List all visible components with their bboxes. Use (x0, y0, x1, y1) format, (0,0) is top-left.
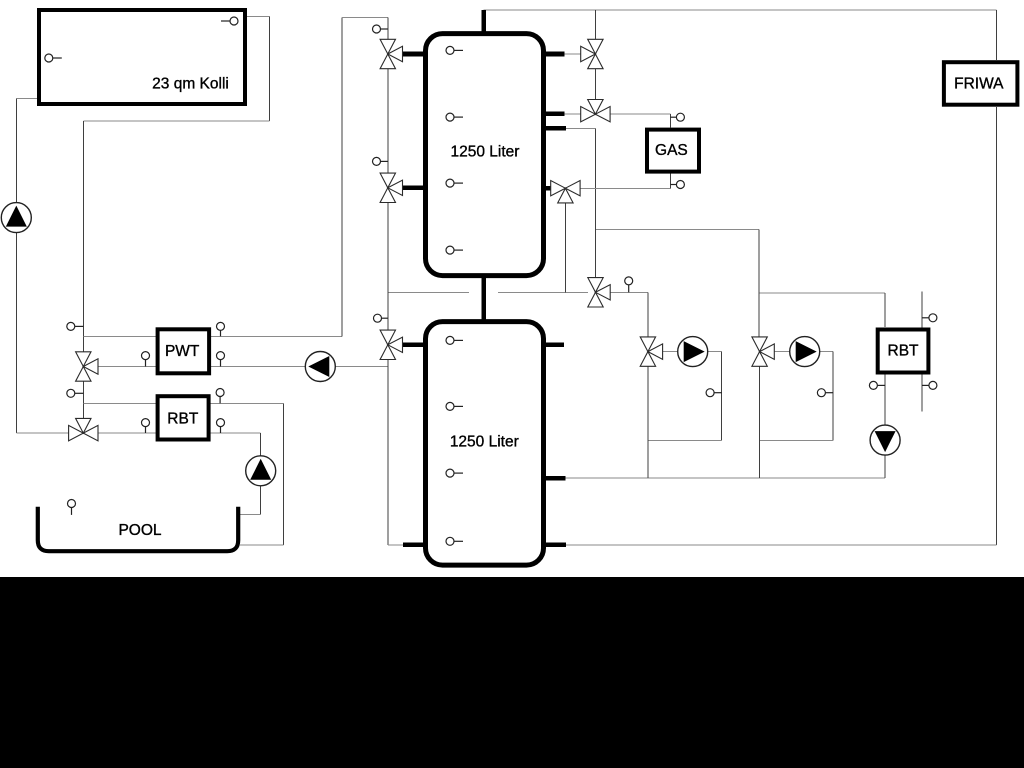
svg-text:GAS: GAS (655, 142, 688, 159)
svg-text:1250 Liter: 1250 Liter (451, 144, 520, 161)
svg-text:FRIWA: FRIWA (954, 75, 1004, 92)
svg-text:POOL: POOL (118, 522, 161, 539)
svg-text:1250 Liter: 1250 Liter (450, 434, 519, 451)
svg-text:23 qm Kolli: 23 qm Kolli (152, 75, 229, 92)
svg-text:PWT: PWT (165, 343, 200, 360)
svg-text:RBT: RBT (888, 343, 920, 360)
svg-text:RBT: RBT (167, 411, 199, 428)
